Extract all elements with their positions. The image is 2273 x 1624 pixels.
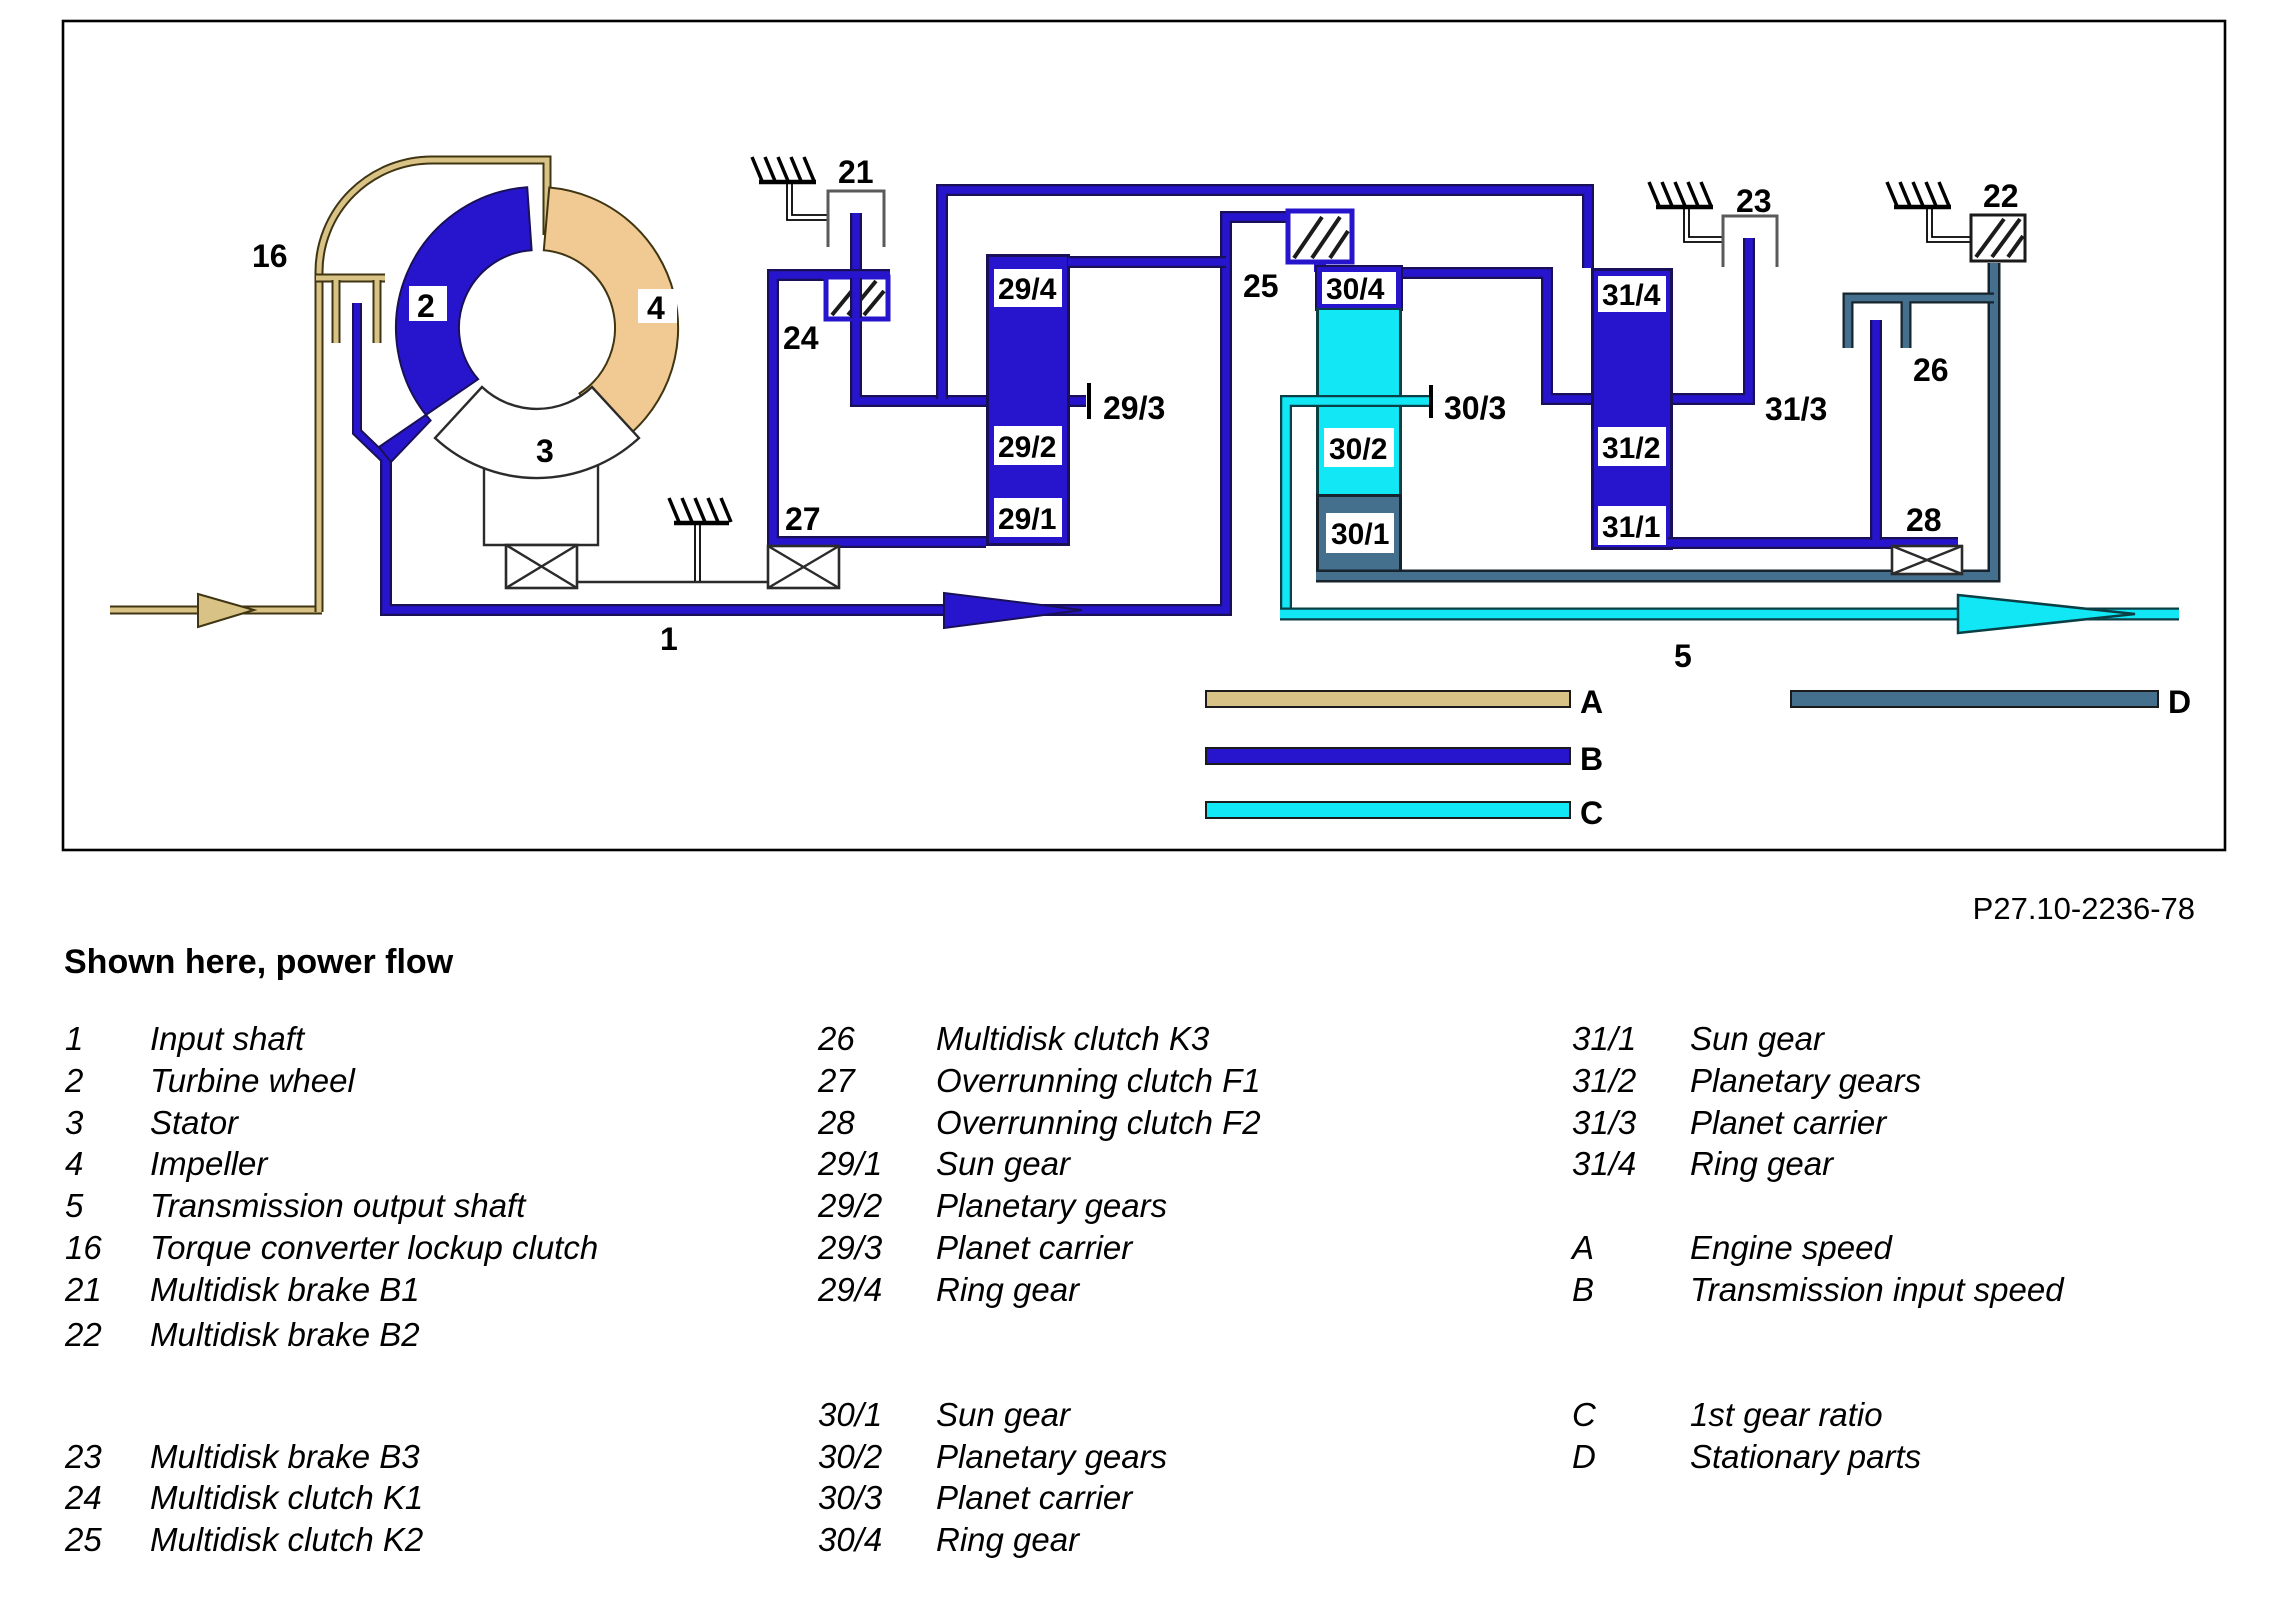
svg-text:Ring gear: Ring gear [1690,1145,1835,1182]
svg-text:29/2: 29/2 [998,431,1056,464]
svg-text:29/4: 29/4 [998,273,1057,306]
svg-text:Input shaft: Input shaft [150,1020,306,1057]
svg-text:31/2: 31/2 [1572,1062,1636,1099]
svg-text:A: A [1580,684,1603,720]
svg-text:Planet carrier: Planet carrier [1690,1104,1888,1141]
svg-text:28: 28 [1906,502,1942,538]
svg-text:29/1: 29/1 [817,1145,882,1182]
svg-text:Multidisk clutch K1: Multidisk clutch K1 [150,1479,423,1516]
svg-text:30/1: 30/1 [1331,518,1389,551]
svg-text:24: 24 [64,1479,102,1516]
svg-text:31/1: 31/1 [1602,511,1660,544]
svg-text:Multidisk brake B3: Multidisk brake B3 [150,1438,420,1475]
svg-text:Stationary parts: Stationary parts [1690,1438,1921,1475]
svg-text:30/4: 30/4 [818,1521,882,1558]
svg-text:29/1: 29/1 [998,503,1056,536]
svg-text:29/3: 29/3 [1103,390,1165,426]
svg-text:2: 2 [64,1062,83,1099]
svg-text:22: 22 [64,1316,102,1353]
svg-text:31/2: 31/2 [1602,432,1660,465]
svg-text:21: 21 [64,1271,102,1308]
svg-text:1st gear ratio: 1st gear ratio [1690,1396,1883,1433]
svg-text:Multidisk clutch K3: Multidisk clutch K3 [936,1020,1210,1057]
svg-text:D: D [1572,1438,1596,1475]
svg-text:25: 25 [64,1521,102,1558]
svg-text:Planetary gears: Planetary gears [936,1438,1167,1475]
svg-text:23: 23 [64,1438,102,1475]
svg-text:5: 5 [1674,638,1692,674]
svg-text:Planetary gears: Planetary gears [1690,1062,1921,1099]
svg-text:31/3: 31/3 [1572,1104,1637,1141]
svg-text:29/2: 29/2 [817,1187,882,1224]
svg-text:31/4: 31/4 [1572,1145,1636,1182]
svg-text:1: 1 [65,1020,83,1057]
svg-text:31/1: 31/1 [1572,1020,1636,1057]
svg-text:25: 25 [1243,268,1279,304]
svg-text:24: 24 [783,320,819,356]
svg-text:28: 28 [817,1104,855,1141]
svg-text:4: 4 [647,290,665,326]
svg-text:B: B [1580,741,1603,777]
svg-text:30/1: 30/1 [818,1396,882,1433]
svg-text:16: 16 [252,238,288,274]
svg-text:21: 21 [838,154,874,190]
svg-text:P27.10-2236-78: P27.10-2236-78 [1973,891,2195,926]
svg-text:A: A [1570,1229,1594,1266]
svg-text:Sun gear: Sun gear [936,1396,1072,1433]
svg-text:16: 16 [65,1229,102,1266]
svg-text:31/4: 31/4 [1602,279,1661,312]
svg-text:27: 27 [785,501,821,537]
svg-text:30/2: 30/2 [818,1438,882,1475]
svg-text:Ring gear: Ring gear [936,1521,1081,1558]
svg-text:Stator: Stator [150,1104,240,1141]
svg-text:29/4: 29/4 [817,1271,882,1308]
svg-text:D: D [2168,684,2191,720]
svg-text:3: 3 [65,1104,84,1141]
svg-text:Impeller: Impeller [150,1145,269,1182]
svg-text:Torque converter lockup clutch: Torque converter lockup clutch [150,1229,598,1266]
svg-text:30/3: 30/3 [818,1479,883,1516]
svg-text:Transmission output shaft: Transmission output shaft [150,1187,527,1224]
svg-text:4: 4 [65,1145,83,1182]
svg-text:C: C [1572,1396,1597,1433]
svg-text:23: 23 [1736,183,1772,219]
svg-text:Shown here, power flow: Shown here, power flow [64,943,454,981]
svg-text:26: 26 [1913,352,1949,388]
svg-text:Ring gear: Ring gear [936,1271,1081,1308]
svg-text:Sun gear: Sun gear [1690,1020,1826,1057]
svg-text:1: 1 [660,621,678,657]
svg-text:Planet carrier: Planet carrier [936,1479,1134,1516]
svg-text:5: 5 [65,1187,84,1224]
svg-text:Overrunning clutch F1: Overrunning clutch F1 [936,1062,1261,1099]
svg-text:29/3: 29/3 [817,1229,883,1266]
svg-text:27: 27 [817,1062,856,1099]
svg-text:30/2: 30/2 [1329,433,1387,466]
svg-text:31/3: 31/3 [1765,391,1827,427]
svg-text:Overrunning clutch F2: Overrunning clutch F2 [936,1104,1261,1141]
svg-text:Transmission input speed: Transmission input speed [1690,1271,2065,1308]
svg-text:30/3: 30/3 [1444,390,1506,426]
svg-text:Planetary gears: Planetary gears [936,1187,1167,1224]
svg-text:B: B [1572,1271,1594,1308]
svg-text:C: C [1580,795,1603,831]
svg-text:3: 3 [536,433,554,469]
svg-text:22: 22 [1983,178,2019,214]
svg-text:Turbine wheel: Turbine wheel [150,1062,357,1099]
svg-text:Multidisk clutch K2: Multidisk clutch K2 [150,1521,423,1558]
svg-text:Multidisk brake B1: Multidisk brake B1 [150,1271,420,1308]
svg-text:30/4: 30/4 [1326,273,1385,306]
svg-text:2: 2 [417,288,435,324]
svg-text:26: 26 [817,1020,855,1057]
svg-text:Engine speed: Engine speed [1690,1229,1893,1266]
svg-text:Planet carrier: Planet carrier [936,1229,1134,1266]
svg-text:Multidisk brake B2: Multidisk brake B2 [150,1316,420,1353]
svg-text:Sun gear: Sun gear [936,1145,1072,1182]
